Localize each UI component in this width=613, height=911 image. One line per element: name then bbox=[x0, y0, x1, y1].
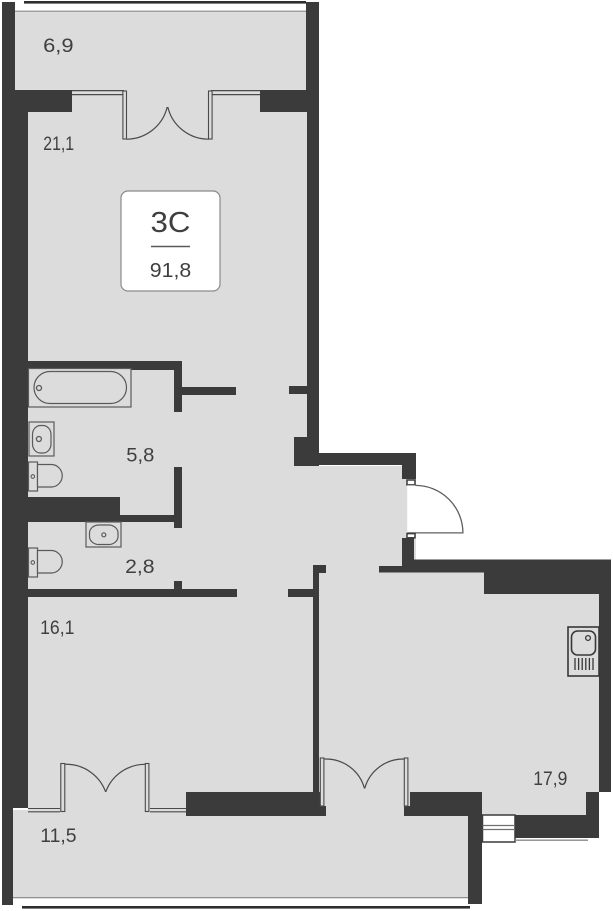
svg-text:6,9: 6,9 bbox=[43, 36, 74, 57]
svg-text:21,1: 21,1 bbox=[43, 134, 74, 155]
svg-text:91,8: 91,8 bbox=[150, 259, 192, 282]
svg-text:5,8: 5,8 bbox=[126, 446, 154, 467]
svg-text:16,1: 16,1 bbox=[40, 618, 74, 639]
svg-text:2,8: 2,8 bbox=[125, 557, 154, 578]
svg-text:3C: 3C bbox=[151, 207, 191, 239]
svg-text:17,9: 17,9 bbox=[533, 769, 567, 790]
svg-text:11,5: 11,5 bbox=[40, 826, 76, 847]
